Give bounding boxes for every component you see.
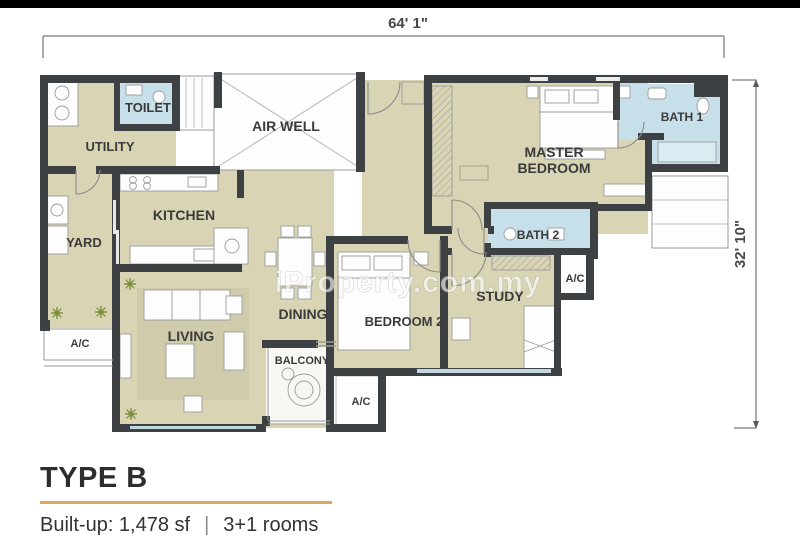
room-label-ac-yard: A/C bbox=[71, 338, 90, 350]
room-label-master-line2: BEDROOM bbox=[517, 160, 590, 176]
room-label-living: LIVING bbox=[168, 328, 215, 344]
bath1-sink bbox=[648, 88, 666, 99]
utility-appliance bbox=[46, 82, 78, 126]
gold-divider bbox=[40, 501, 332, 504]
room-label-yard: YARD bbox=[66, 235, 102, 250]
tv-console bbox=[120, 334, 131, 378]
room-label-master-line1: MASTER bbox=[524, 144, 583, 160]
master-dresser bbox=[604, 184, 652, 196]
room-label-ac-balcony: A/C bbox=[352, 396, 371, 408]
master-wardrobe bbox=[432, 86, 452, 196]
rooms-value: 3+1 rooms bbox=[223, 514, 318, 537]
yard-washer bbox=[46, 196, 68, 224]
study-bed bbox=[524, 306, 556, 370]
room-label-bath1: BATH 1 bbox=[661, 110, 704, 124]
room-label-dining: DINING bbox=[279, 306, 328, 322]
watermark-text: iProperty.com.my bbox=[274, 266, 541, 299]
coffee-table bbox=[166, 344, 194, 378]
unit-type-title: TYPE B bbox=[40, 462, 760, 495]
room-label-bath2: BATH 2 bbox=[517, 228, 560, 242]
floorplan-page: 64' 1" 32' 10" TOILET UTILITY AIR WELL K… bbox=[0, 0, 800, 552]
built-up-value: Built-up: 1,478 sf bbox=[40, 514, 190, 537]
spec-separator: | bbox=[204, 514, 209, 537]
room-label-toilet: TOILET bbox=[125, 100, 171, 115]
unit-specs: Built-up: 1,478 sf | 3+1 rooms bbox=[40, 514, 760, 537]
room-label-kitchen: KITCHEN bbox=[153, 207, 215, 223]
kitchen-peninsula bbox=[214, 228, 248, 264]
dimension-width-label: 64' 1" bbox=[388, 15, 428, 32]
study-side-table bbox=[452, 318, 470, 340]
room-label-ac-study: A/C bbox=[566, 273, 585, 285]
bath1-shower bbox=[658, 142, 716, 162]
caption-block: TYPE B Built-up: 1,478 sf | 3+1 rooms bbox=[40, 462, 760, 537]
armchair bbox=[224, 332, 244, 370]
dimension-height-label: 32' 10" bbox=[732, 220, 749, 268]
sofa bbox=[144, 290, 230, 320]
room-label-bedroom2: BEDROOM 2 bbox=[365, 314, 444, 329]
bath2-sink bbox=[504, 228, 516, 240]
room-label-utility: UTILITY bbox=[85, 139, 134, 154]
toilet-sink bbox=[126, 85, 142, 95]
room-label-balcony: BALCONY bbox=[275, 355, 330, 367]
room-label-air-well: AIR WELL bbox=[252, 118, 320, 134]
